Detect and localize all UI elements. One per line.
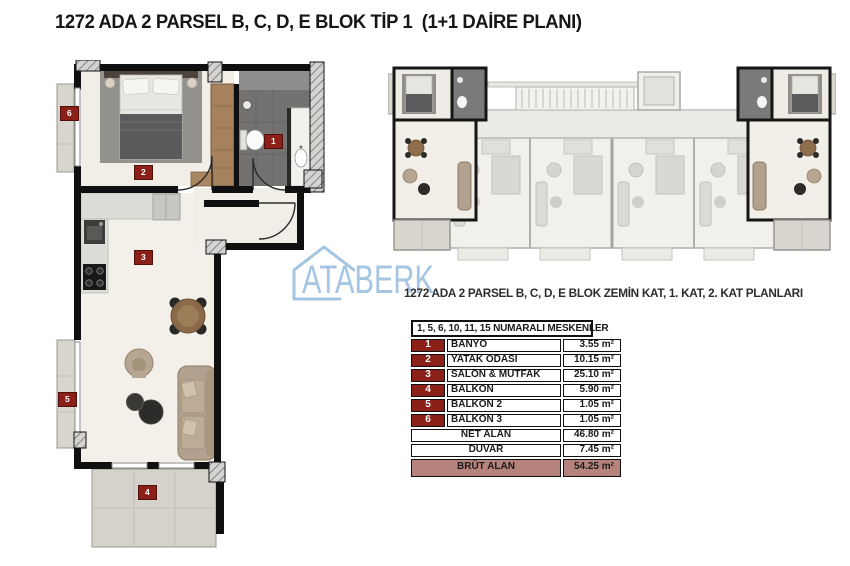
kitchen-sink <box>84 220 105 244</box>
row-number-cell: 1 <box>411 339 445 352</box>
dining-table <box>170 298 207 335</box>
row-number-cell: 5 <box>411 399 445 412</box>
room-marker-yatak-odasi: 2 <box>134 165 153 180</box>
apartment-floorplan: 1 2 3 4 5 6 <box>54 60 332 562</box>
stove <box>83 264 106 290</box>
room-name-cell: YATAK ODASI <box>447 354 561 367</box>
hallway-floor <box>194 188 297 243</box>
row-number-cell: 4 <box>411 384 445 397</box>
room-name-cell: BALKON 2 <box>447 399 561 412</box>
room-marker-balkon-3: 6 <box>60 106 79 121</box>
room-marker-salon-mutfak: 3 <box>134 250 153 265</box>
table-row-banyo: 1 BANYO 3.55 m² <box>411 339 621 352</box>
summary-area-cell: 46.80 m² <box>563 429 621 442</box>
plan-caption: 1272 ADA 2 PARSEL B, C, D, E BLOK ZEMİN … <box>404 286 835 300</box>
room-area-cell: 5.90 m² <box>563 384 621 397</box>
table-row-brut-alan: BRÜT ALAN 54.25 m² <box>411 459 621 477</box>
table-row-balkon-2: 5 BALKON 2 1.05 m² <box>411 399 621 412</box>
room-name-cell: BALKON <box>447 384 561 397</box>
room-name-cell: BANYO <box>447 339 561 352</box>
floor-plan-page: 1272 ADA 2 PARSEL B, C, D, E BLOK TİP 1 … <box>0 0 850 566</box>
summary-name-cell: NET ALAN <box>411 429 561 442</box>
room-area-cell: 1.05 m² <box>563 399 621 412</box>
table-row-net-alan: NET ALAN 46.80 m² <box>411 429 621 442</box>
table-row-balkon-3: 6 BALKON 3 1.05 m² <box>411 414 621 427</box>
entry-cabinet <box>191 172 213 186</box>
room-area-cell: 10.15 m² <box>563 354 621 367</box>
building-floorplan <box>388 62 836 262</box>
row-number-cell: 6 <box>411 414 445 427</box>
elevator <box>638 72 680 110</box>
table-header: 1, 5, 6, 10, 11, 15 NUMARALI MESKENLER <box>411 320 593 337</box>
room-area-cell: 25.10 m² <box>563 369 621 382</box>
table-row-duvar: DUVAR 7.45 m² <box>411 444 621 457</box>
room-marker-balkon: 4 <box>138 485 157 500</box>
room-marker-banyo: 1 <box>264 134 283 149</box>
wardrobe <box>211 84 234 186</box>
building-floorplan-drawing <box>388 62 836 262</box>
sofa <box>178 366 216 460</box>
bed <box>100 71 202 163</box>
bathroom <box>239 71 310 186</box>
summary-area-cell: 54.25 m² <box>563 459 621 477</box>
area-table: 1, 5, 6, 10, 11, 15 NUMARALI MESKENLER 1… <box>411 320 621 479</box>
toilet <box>240 130 264 150</box>
room-name-cell: SALON & MUTFAK <box>447 369 561 382</box>
summary-area-cell: 7.45 m² <box>563 444 621 457</box>
room-area-cell: 1.05 m² <box>563 414 621 427</box>
table-row-salon-mutfak: 3 SALON & MUTFAK 25.10 m² <box>411 369 621 382</box>
summary-name-cell: DUVAR <box>411 444 561 457</box>
room-name-cell: BALKON 3 <box>447 414 561 427</box>
room-area-cell: 3.55 m² <box>563 339 621 352</box>
staircase <box>516 87 634 110</box>
page-title: 1272 ADA 2 PARSEL B, C, D, E BLOK TİP 1 … <box>55 12 582 34</box>
room-marker-balkon-2: 5 <box>58 392 77 407</box>
apartment-floorplan-drawing <box>54 60 332 562</box>
balcony-1-area <box>92 469 216 547</box>
row-number-cell: 3 <box>411 369 445 382</box>
armchair <box>125 349 153 378</box>
balcony-3-area <box>57 84 74 172</box>
row-number-cell: 2 <box>411 354 445 367</box>
shower-head-icon <box>243 101 252 110</box>
summary-name-cell: BRÜT ALAN <box>411 459 561 477</box>
table-row-balkon: 4 BALKON 5.90 m² <box>411 384 621 397</box>
table-row-yatak-odasi: 2 YATAK ODASI 10.15 m² <box>411 354 621 367</box>
